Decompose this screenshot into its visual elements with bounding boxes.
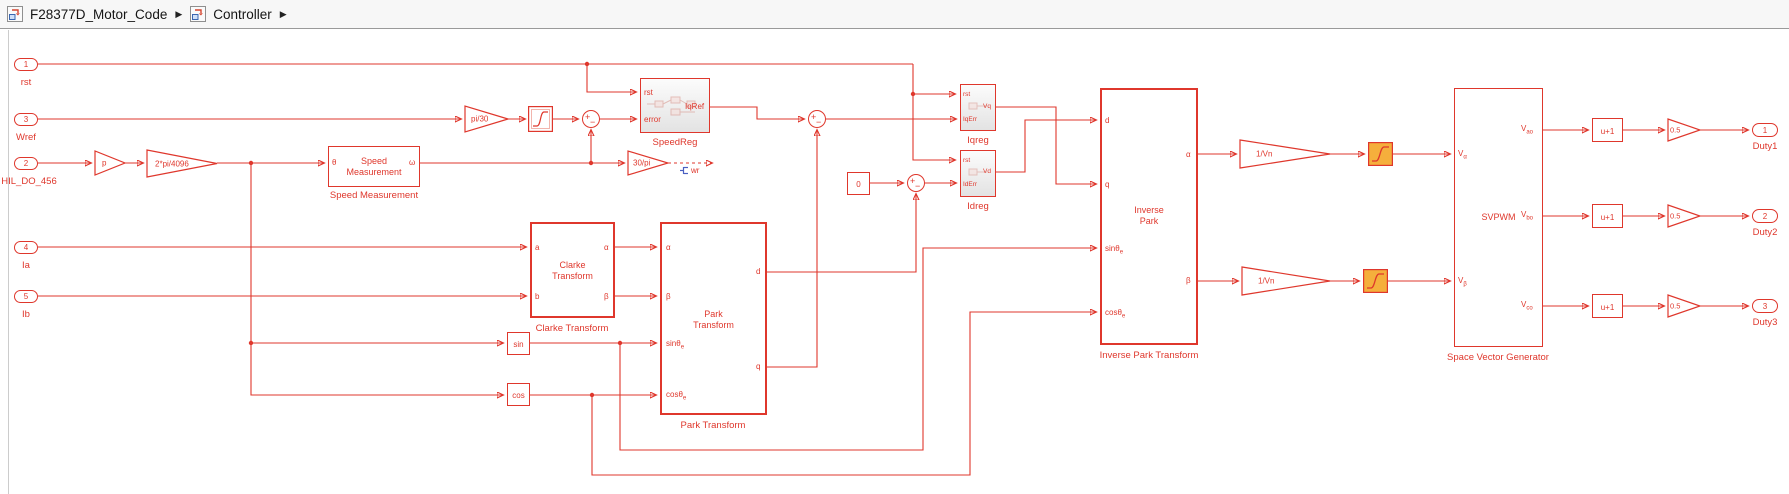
speed-measurement-label: Speed Measurement xyxy=(330,190,418,201)
park-in-cos: cosθe xyxy=(666,390,686,404)
model-canvas[interactable]: 1 rst 3 Wref 2 HIL_DO_456 4 Ia 5 Ib p 2*… xyxy=(0,0,1789,494)
inverse-park-in-q: q xyxy=(1105,180,1109,189)
speed-measurement-in-theta: θ xyxy=(332,158,336,167)
iqreg-out-vq: Vq xyxy=(983,103,991,110)
gain-p[interactable]: p xyxy=(95,151,125,175)
u-plus-1-b-value: u+1 xyxy=(1601,213,1615,222)
annotation-wr[interactable]: wr xyxy=(680,166,699,175)
inport-wref[interactable]: 3 xyxy=(14,113,38,126)
inverse-park-line2: Park xyxy=(1140,216,1159,226)
outport-duty3[interactable]: 3 xyxy=(1752,299,1778,313)
gain-2pi-4096[interactable]: 2*pi/4096 xyxy=(147,150,217,177)
saturation-alpha[interactable] xyxy=(1368,142,1393,166)
gain-half-a-value: 0.5 xyxy=(1670,126,1680,135)
inverse-park-in-sin: sinθe xyxy=(1105,244,1123,258)
park-out-q: q xyxy=(756,362,760,371)
outport-duty1-number: 1 xyxy=(1763,126,1767,135)
outport-duty3-label: Duty3 xyxy=(1753,317,1778,328)
inport-hil-number: 2 xyxy=(24,159,28,168)
speed-measurement-line1: Speed xyxy=(361,156,387,166)
gain-p-value: p xyxy=(102,159,106,168)
model-icon xyxy=(7,6,23,22)
block-sin[interactable]: sin xyxy=(507,332,530,355)
iqreg-in-iqerr: IqErr xyxy=(963,116,977,123)
idreg-in-iderr: IdErr xyxy=(963,181,977,188)
cos-label: cos xyxy=(512,391,524,400)
svpwm-label: Space Vector Generator xyxy=(1447,352,1549,363)
svpwm-out-vbo: Vbo xyxy=(1521,210,1533,224)
gain-half-b-value: 0.5 xyxy=(1670,212,1680,221)
svpwm-in-vbeta: Vβ xyxy=(1458,276,1467,290)
iqreg-label: Iqreg xyxy=(967,135,989,146)
inport-wref-number: 3 xyxy=(24,115,28,124)
gain-1vn-alpha-value: 1/Vn xyxy=(1256,150,1272,159)
saturation-speed[interactable] xyxy=(528,106,553,132)
breadcrumb-model[interactable]: F28377D_Motor_Code xyxy=(30,7,167,22)
svpwm-out-vao: Vao xyxy=(1521,124,1533,138)
outport-duty1-label: Duty1 xyxy=(1753,141,1778,152)
block-cos[interactable]: cos xyxy=(507,383,530,406)
park-in-sin: sinθe xyxy=(666,339,684,353)
gain-half-a[interactable]: 0.5 xyxy=(1668,119,1700,141)
clarke-in-a: a xyxy=(535,243,539,252)
breadcrumb: F28377D_Motor_Code ▶ Controller ▶ xyxy=(0,0,1789,29)
iqreg-in-rst: rst xyxy=(963,91,970,98)
gain-pi-30-value: pi/30 xyxy=(471,115,488,124)
speedreg-label: SpeedReg xyxy=(653,137,698,148)
gain-pi-30[interactable]: pi/30 xyxy=(465,106,508,132)
svpwm-title: SVPWM xyxy=(1481,212,1515,222)
block-zero-constant[interactable]: 0 xyxy=(847,172,870,195)
block-u-plus-1-b[interactable]: u+1 xyxy=(1592,204,1623,228)
block-clarke-transform[interactable]: Clarke Transform xyxy=(530,222,615,318)
inport-wref-label: Wref xyxy=(16,132,36,143)
gain-half-c[interactable]: 0.5 xyxy=(1668,295,1700,317)
inport-hil-label: HIL_DO_456 xyxy=(1,176,56,187)
block-u-plus-1-a[interactable]: u+1 xyxy=(1592,118,1623,142)
outport-duty2[interactable]: 2 xyxy=(1752,209,1778,223)
inport-ib-number: 5 xyxy=(24,292,28,301)
outport-duty1[interactable]: 1 xyxy=(1752,123,1778,137)
gain-1vn-beta-value: 1/Vn xyxy=(1258,277,1274,286)
saturation-beta[interactable] xyxy=(1363,269,1388,293)
inport-ia-number: 4 xyxy=(24,243,28,252)
inport-rst-label: rst xyxy=(21,77,32,88)
inport-hil-do-456[interactable]: 2 xyxy=(14,157,38,170)
block-park-transform[interactable]: Park Transform xyxy=(660,222,767,415)
sin-label: sin xyxy=(513,340,523,349)
sum-id-minus: − xyxy=(915,182,920,191)
gain-30-pi[interactable]: 30/pi xyxy=(628,151,668,175)
inport-rst[interactable]: 1 xyxy=(14,58,38,71)
signal-logging-icon xyxy=(680,166,689,175)
sum-iq-error[interactable]: + − xyxy=(808,110,826,128)
gain-2pi-4096-value: 2*pi/4096 xyxy=(155,159,189,168)
speedreg-out-iqref: IqRef xyxy=(685,102,704,111)
inport-ib[interactable]: 5 xyxy=(14,290,38,303)
clarke-line2: Transform xyxy=(552,271,593,281)
breadcrumb-subsystem[interactable]: Controller xyxy=(213,7,272,22)
inverse-park-in-cos: cosθe xyxy=(1105,308,1125,322)
clarke-in-b: b xyxy=(535,292,539,301)
sum-id-error[interactable]: + − xyxy=(907,174,925,192)
inverse-park-out-beta: β xyxy=(1186,276,1191,285)
block-speed-measurement[interactable]: Speed Measurement xyxy=(328,146,420,187)
svpwm-out-vco: Vco xyxy=(1521,300,1533,314)
park-line1: Park xyxy=(704,309,723,319)
sum-speed-minus: − xyxy=(590,118,595,127)
sum-iq-minus: − xyxy=(816,118,821,127)
u-plus-1-c-value: u+1 xyxy=(1601,303,1615,312)
sum-speed-error[interactable]: + − xyxy=(582,110,600,128)
idreg-out-vd: Vd xyxy=(983,168,991,175)
inverse-park-label: Inverse Park Transform xyxy=(1100,350,1199,361)
inport-ia[interactable]: 4 xyxy=(14,241,38,254)
speed-measurement-line2: Measurement xyxy=(346,167,401,177)
speed-measurement-out-omega: ω xyxy=(409,158,415,167)
gain-half-b[interactable]: 0.5 xyxy=(1668,205,1700,227)
clarke-line1: Clarke xyxy=(559,260,585,270)
svpwm-in-valpha: Vα xyxy=(1458,149,1467,163)
outport-duty2-number: 2 xyxy=(1763,212,1767,221)
inport-ia-label: Ia xyxy=(22,260,30,271)
park-in-beta: β xyxy=(666,292,671,301)
gain-half-c-value: 0.5 xyxy=(1670,302,1680,311)
inport-rst-number: 1 xyxy=(24,60,28,69)
clarke-out-alpha: α xyxy=(604,243,609,252)
idreg-label: Idreg xyxy=(967,201,989,212)
park-in-alpha: α xyxy=(666,243,671,252)
gain-1vn-alpha[interactable]: 1/Vn xyxy=(1240,140,1330,168)
clarke-label: Clarke Transform xyxy=(536,323,609,334)
inverse-park-in-d: d xyxy=(1105,116,1109,125)
zero-value: 0 xyxy=(856,180,860,189)
park-line2: Transform xyxy=(693,320,734,330)
speedreg-in-error: error xyxy=(644,115,661,124)
outport-duty3-number: 3 xyxy=(1763,302,1767,311)
idreg-in-rst: rst xyxy=(963,157,970,164)
park-out-d: d xyxy=(756,267,760,276)
inport-ib-label: Ib xyxy=(22,309,30,320)
inverse-park-line1: Inverse xyxy=(1134,205,1164,215)
clarke-out-beta: β xyxy=(604,292,609,301)
annotation-wr-text: wr xyxy=(691,166,699,175)
subsystem-icon xyxy=(190,6,206,22)
block-u-plus-1-c[interactable]: u+1 xyxy=(1592,294,1623,318)
inverse-park-out-alpha: α xyxy=(1186,150,1191,159)
gain-30-pi-value: 30/pi xyxy=(633,159,650,168)
breadcrumb-separator-2: ▶ xyxy=(280,9,287,20)
gain-1vn-beta[interactable]: 1/Vn xyxy=(1242,267,1330,295)
block-inverse-park[interactable]: Inverse Park xyxy=(1100,88,1198,345)
outport-duty2-label: Duty2 xyxy=(1753,227,1778,238)
speedreg-in-rst: rst xyxy=(644,88,653,97)
park-label: Park Transform xyxy=(681,420,746,431)
breadcrumb-separator: ▶ xyxy=(175,9,182,20)
u-plus-1-a-value: u+1 xyxy=(1601,127,1615,136)
